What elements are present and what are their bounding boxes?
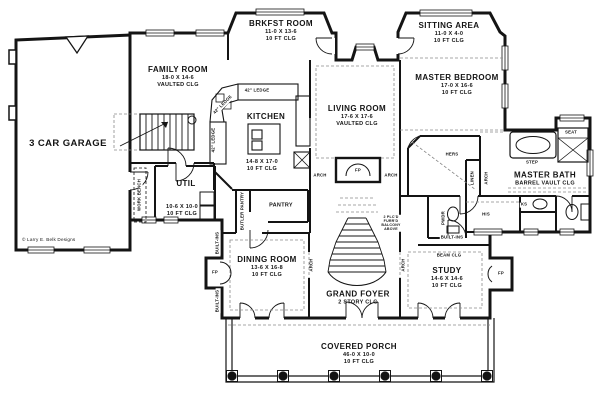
room-name: KITCHEN — [247, 112, 285, 122]
arch-label: ARCH — [485, 170, 490, 185]
powder-room-label: PWDR — [442, 210, 447, 226]
fireplace-label: FP — [211, 271, 219, 276]
room-label-kitchen: KITCHEN — [247, 112, 285, 122]
room-dims: 14-8 X 17-0 — [246, 159, 278, 166]
balcony-note: 2 PLC'D FURR'D BALCONY ABOVE — [380, 215, 401, 232]
room-name: UTIL — [176, 179, 195, 189]
room-ceiling: 10 FT CLG — [321, 359, 397, 366]
room-dims: 13-6 X 16-8 — [237, 265, 297, 272]
room-label-porch: COVERED PORCH 46-0 X 10-0 10 FT CLG — [321, 342, 397, 366]
room-name: SITTING AREA — [419, 21, 480, 31]
arch-label: ARCH — [312, 174, 327, 179]
fireplace-label: FP — [497, 272, 505, 277]
built-ins-label: BUILT-INS — [216, 289, 221, 314]
room-ceiling: 10 FT CLG — [419, 38, 480, 45]
room-dims: 11-0 X 13-6 — [249, 29, 313, 36]
room-ceiling: 10 FT CLG — [237, 272, 297, 279]
arch-label: ARCH — [402, 257, 407, 272]
room-ceiling: 10 FT CLG — [166, 211, 198, 218]
room-dims: 11-0 X 4-0 — [419, 31, 480, 38]
designer-credit: © Larry E. Belk Designs — [22, 237, 75, 242]
room-name: STUDY — [431, 266, 463, 276]
room-label-foyer: GRAND FOYER 2 STORY CLG — [326, 290, 390, 307]
room-label-util: UTIL — [176, 179, 195, 189]
linen-label: LINEN — [471, 170, 476, 186]
hers-closet-label: HERS — [445, 153, 460, 158]
butler-pantry-label: BUTLER PANTRY — [241, 191, 246, 231]
arch-label: ARCH — [310, 257, 315, 272]
built-ins-label: BUILT-INS — [440, 236, 465, 241]
room-name: BRKFST ROOM — [249, 19, 313, 29]
room-ceiling: BARREL VAULT CLG — [514, 181, 576, 188]
room-dims: 17-6 X 17-6 — [328, 114, 386, 121]
room-name: COVERED PORCH — [321, 342, 397, 352]
room-label-sitting: SITTING AREA 11-0 X 4-0 10 FT CLG — [419, 21, 480, 45]
room-label-util-dims: 10-6 X 10-0 10 FT CLG — [166, 204, 198, 218]
room-dims: 18-0 X 14-6 — [148, 75, 208, 82]
built-ins-label: BUILT-INS — [216, 231, 221, 256]
floor-plan-page: 3 CAR GARAGE FAMILY ROOM 18-0 X 14-6 VAU… — [0, 0, 600, 403]
room-name: DINING ROOM — [237, 255, 297, 265]
room-name: MASTER BEDROOM — [415, 73, 498, 83]
fireplace-label: FP — [354, 169, 362, 174]
room-dims: 14-6 X 14-6 — [431, 276, 463, 283]
room-label-dining: DINING ROOM 13-6 X 16-8 10 FT CLG — [237, 255, 297, 279]
room-dims: 17-0 X 16-6 — [415, 83, 498, 90]
work-bench-label: WORK BENCH — [138, 178, 143, 212]
his-closet-label: HIS — [481, 213, 491, 218]
seat-label: SEAT — [564, 131, 578, 136]
room-label-family: FAMILY ROOM 18-0 X 14-6 VAULTED CLG — [148, 65, 208, 89]
room-name: FAMILY ROOM — [148, 65, 208, 75]
room-name: MASTER BATH — [514, 171, 576, 181]
room-ceiling: 10 FT CLG — [431, 283, 463, 290]
beam-ceiling-label: BEAM CLG — [436, 254, 463, 259]
room-label-pantry: PANTRY — [269, 203, 293, 210]
knee-space-label: KS — [520, 203, 528, 208]
labels-layer: 3 CAR GARAGE FAMILY ROOM 18-0 X 14-6 VAU… — [0, 0, 600, 403]
room-name: PANTRY — [269, 203, 293, 210]
room-name: LIVING ROOM — [328, 104, 386, 114]
room-ceiling: 10 FT CLG — [246, 166, 278, 173]
room-ceiling: 10 FT CLG — [415, 90, 498, 97]
room-label-master-bath: MASTER BATH BARREL VAULT CLG — [514, 171, 576, 188]
room-label-study: STUDY 14-6 X 14-6 10 FT CLG — [431, 266, 463, 290]
room-label-kitchen-dims: 14-8 X 17-0 10 FT CLG — [246, 159, 278, 173]
room-ceiling: 2 STORY CLG — [326, 300, 390, 307]
room-name: GRAND FOYER — [326, 290, 390, 300]
room-ceiling: VAULTED CLG — [328, 121, 386, 128]
room-label-master-bedroom: MASTER BEDROOM 17-0 X 16-6 10 FT CLG — [415, 73, 498, 97]
ledge-label: 42" LEDGE — [212, 94, 234, 116]
room-ceiling: VAULTED CLG — [148, 82, 208, 89]
room-name: 3 CAR GARAGE — [29, 138, 107, 150]
room-label-living: LIVING ROOM 17-6 X 17-6 VAULTED CLG — [328, 104, 386, 128]
room-dims: 46-0 X 10-0 — [321, 352, 397, 359]
step-label: STEP — [525, 161, 539, 166]
room-label-garage: 3 CAR GARAGE — [29, 138, 107, 150]
room-label-brkfst: BRKFST ROOM 11-0 X 13-6 10 FT CLG — [249, 19, 313, 43]
ledge-label: 42" LEDGE — [244, 89, 271, 94]
ledge-label: 42" LEDGE — [212, 127, 217, 154]
room-ceiling: 10 FT CLG — [249, 36, 313, 43]
arch-label: ARCH — [383, 174, 398, 179]
room-dims: 10-6 X 10-0 — [166, 204, 198, 211]
